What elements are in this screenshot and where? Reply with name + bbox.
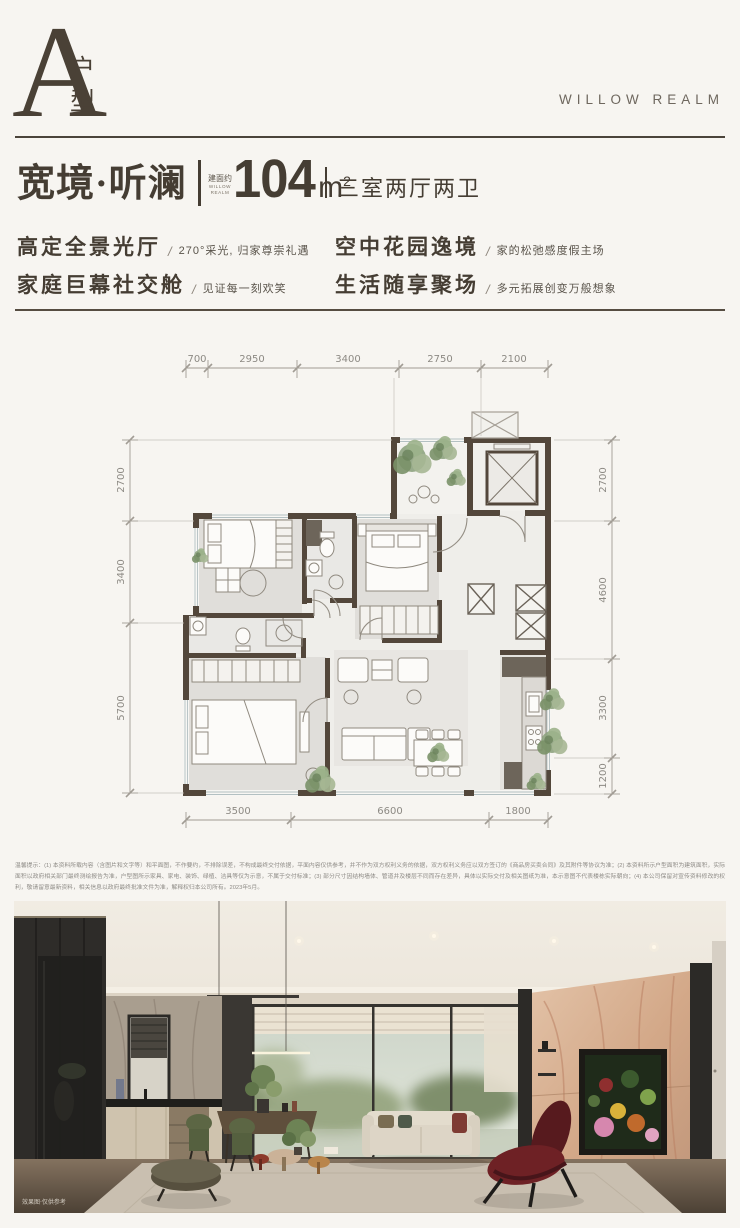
- photo-caption: 效果图·仅供参考: [22, 1198, 66, 1206]
- top-dim-ticks: [182, 360, 552, 378]
- dim-label: 2700: [598, 467, 609, 492]
- dim-label: 1200: [598, 763, 609, 788]
- sofa: [362, 1111, 480, 1157]
- interior-render-photo: 效果图·仅供参考: [14, 901, 726, 1213]
- dim-label: 3500: [225, 806, 250, 817]
- dim-label: 3400: [116, 559, 127, 584]
- stairwell: [472, 412, 518, 438]
- dim-label: 3400: [335, 354, 360, 365]
- dim-label: 1800: [505, 806, 530, 817]
- bedroom-2-furniture: [358, 524, 438, 634]
- dim-label: 2700: [116, 467, 127, 492]
- floorplan-and-photo-canvas: 700 2950 3400 2750 2100 3500 6600 1800 2…: [0, 0, 740, 1228]
- dim-label: 2950: [239, 354, 264, 365]
- dim-label: 3300: [598, 695, 609, 720]
- elevator-core: [487, 444, 537, 504]
- kitchen-counter: [106, 1099, 222, 1107]
- dim-label: 5700: [116, 695, 127, 720]
- floorplan: 700 2950 3400 2750 2100 3500 6600 1800 2…: [116, 354, 620, 828]
- dim-label: 700: [187, 354, 206, 365]
- dim-label: 2100: [501, 354, 526, 365]
- dim-label: 4600: [598, 577, 609, 602]
- disclaimer-text: 温馨提示：(1) 本资料所载内容（含图片和文字等）和平面图，不作要约，不排除误差…: [15, 861, 725, 895]
- dim-label: 2750: [427, 354, 452, 365]
- wall-painting: [579, 1049, 667, 1155]
- dim-label: 6600: [377, 806, 402, 817]
